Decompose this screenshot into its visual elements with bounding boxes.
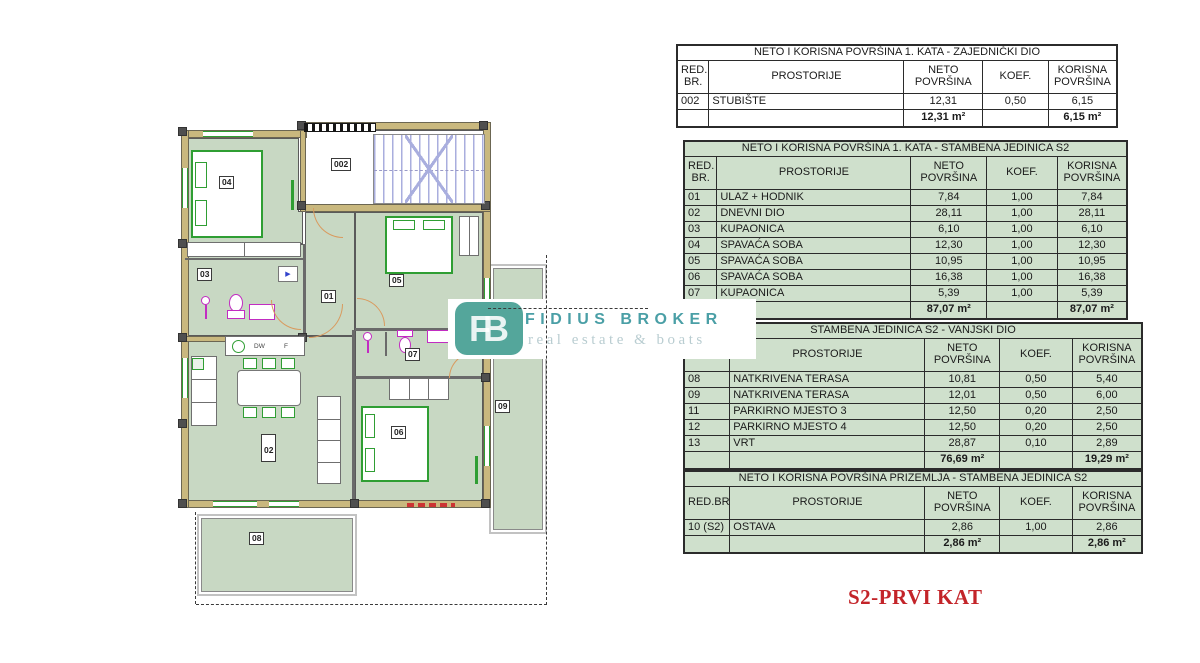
sofa-icon <box>317 396 341 484</box>
door-leaf <box>291 180 294 210</box>
room-label-002: 002 <box>331 158 351 171</box>
toilet-tank <box>227 310 245 319</box>
pillow-icon <box>393 220 415 230</box>
room-label-06: 06 <box>391 426 406 439</box>
document-canvas: DW F ▶ 002 04 03 <box>0 0 1200 663</box>
wall-post <box>178 239 187 248</box>
room-label-02: 02 <box>261 434 276 462</box>
room-label-07: 07 <box>405 348 420 361</box>
boiler-icon: ▶ <box>278 266 298 282</box>
logo-title: FIDIUS BROKER <box>525 311 723 329</box>
bed-icon <box>385 216 453 274</box>
closet-icon <box>187 242 301 257</box>
kitchen-counter: DW F <box>225 336 305 356</box>
boundary-dashed-line <box>195 512 196 604</box>
window <box>203 131 253 137</box>
room-label-09: 09 <box>495 400 510 413</box>
window <box>182 168 188 208</box>
pillow-icon <box>195 162 207 188</box>
partition <box>185 258 305 260</box>
shelf-icon <box>459 216 479 256</box>
counter-line <box>192 402 216 403</box>
floor-plan: DW F ▶ 002 04 03 <box>173 108 613 628</box>
partition <box>352 330 355 504</box>
wall-post <box>178 499 187 508</box>
wall-post <box>481 373 490 382</box>
wall-post <box>350 499 359 508</box>
window <box>269 501 299 507</box>
pillow-icon <box>365 448 375 472</box>
chair-icon <box>262 407 276 418</box>
wall-segment <box>300 130 306 212</box>
room-label-04: 04 <box>219 176 234 189</box>
window <box>484 426 490 466</box>
shower-stem <box>367 341 369 353</box>
stairs-icon <box>373 134 485 204</box>
toilet-tank <box>397 330 413 337</box>
dining-table-icon <box>237 370 301 406</box>
wall-segment <box>181 130 189 344</box>
bed-icon <box>361 406 429 482</box>
area-table-common-part: NETO I KORISNA POVRŠINA 1. KATA - ZAJEDN… <box>676 44 1118 128</box>
chair-icon <box>243 407 257 418</box>
pillow-icon <box>365 414 375 438</box>
wall-post <box>178 419 187 428</box>
shower-icon <box>201 296 210 305</box>
wardrobe-icon <box>389 378 449 400</box>
room-label-08: 08 <box>249 532 264 545</box>
hatch-strip <box>304 123 376 132</box>
bed-icon <box>191 150 263 238</box>
cooktop-icon <box>192 358 204 370</box>
pillow-icon <box>423 220 445 230</box>
window <box>213 501 257 507</box>
room-label-05: 05 <box>389 274 404 287</box>
partition <box>385 332 387 356</box>
dishwasher-label: DW <box>254 343 265 350</box>
shower-icon <box>363 332 372 341</box>
counter-line <box>192 379 216 380</box>
room-label-03: 03 <box>197 268 212 281</box>
window <box>182 358 188 398</box>
chair-icon <box>281 407 295 418</box>
area-table-unit-s2-floor1: NETO I KORISNA POVRŠINA 1. KATA - STAMBE… <box>683 140 1128 320</box>
logo-subtitle: real estate & boats <box>528 332 706 349</box>
chair-icon <box>262 358 276 369</box>
pillow-icon <box>195 200 207 226</box>
section-dashed-line <box>488 308 648 309</box>
wall-post <box>297 201 306 210</box>
door-leaf <box>475 456 478 484</box>
threshold-marks <box>407 503 455 507</box>
sink-icon <box>232 340 245 353</box>
chair-icon <box>281 358 295 369</box>
sheet-title: S2-PRVI KAT <box>848 585 982 610</box>
wall-post <box>481 499 490 508</box>
area-table-unit-s2-groundfloor: NETO I KORISNA POVRŠINA PRIZEMLJA - STAM… <box>683 470 1143 554</box>
boundary-dashed-line <box>196 604 547 605</box>
logo-badge-icon: FB <box>455 302 523 355</box>
room-label-01: 01 <box>321 290 336 303</box>
wall-post <box>178 333 187 342</box>
fridge-label: F <box>284 343 288 350</box>
chair-icon <box>243 358 257 369</box>
wall-post <box>178 127 187 136</box>
wall-post <box>479 121 488 130</box>
shower-stem <box>205 305 207 319</box>
terrace-08 <box>201 518 353 592</box>
